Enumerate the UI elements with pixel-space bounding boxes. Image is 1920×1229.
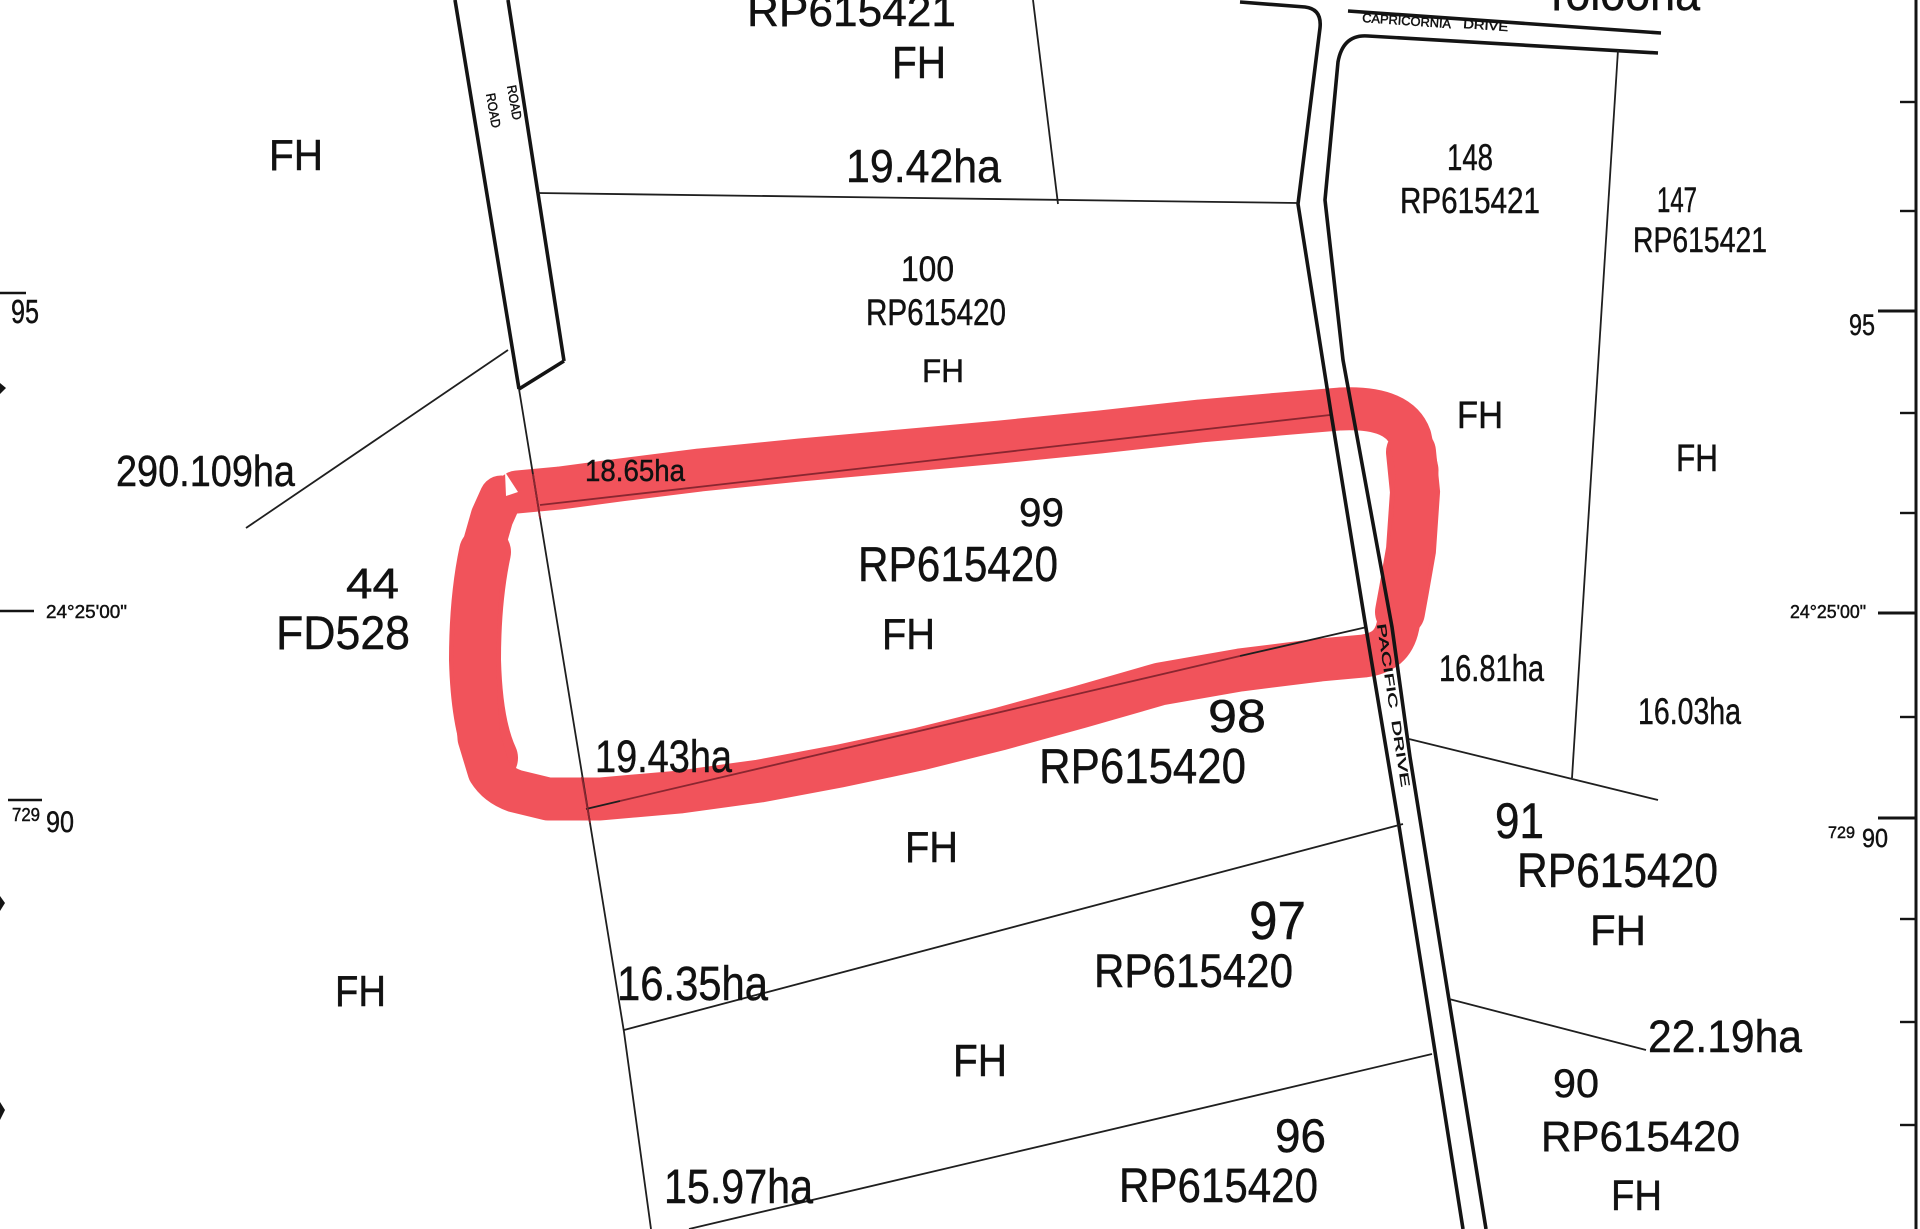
svg-text:19.43ha: 19.43ha	[595, 731, 733, 782]
svg-text:16.81ha: 16.81ha	[1439, 648, 1544, 689]
svg-text:91: 91	[1495, 793, 1544, 849]
svg-text:729: 729	[1828, 823, 1855, 842]
svg-text:147: 147	[1657, 181, 1697, 220]
svg-text:24°25'00": 24°25'00"	[1790, 602, 1866, 622]
svg-text:15.97ha: 15.97ha	[664, 1161, 813, 1214]
svg-text:FH: FH	[905, 823, 958, 872]
svg-text:18.65ha: 18.65ha	[585, 453, 686, 488]
svg-text:95: 95	[11, 293, 39, 330]
svg-text:97: 97	[1249, 891, 1306, 951]
svg-text:16.35ha: 16.35ha	[617, 958, 768, 1011]
svg-text:FH: FH	[1676, 438, 1718, 480]
svg-text:FH: FH	[892, 37, 946, 88]
svg-text:90: 90	[46, 806, 74, 839]
svg-text:22.19ha: 22.19ha	[1648, 1011, 1803, 1062]
svg-text:95: 95	[1849, 309, 1875, 342]
svg-text:Toloona: Toloona	[1543, 0, 1700, 21]
svg-text:FH: FH	[1590, 907, 1646, 955]
svg-text:RP615420: RP615420	[858, 538, 1058, 592]
svg-text:16.03ha: 16.03ha	[1638, 691, 1741, 732]
svg-text:148: 148	[1447, 137, 1493, 178]
svg-text:290.109ha: 290.109ha	[116, 447, 295, 496]
svg-text:90: 90	[1553, 1062, 1599, 1106]
svg-text:FH: FH	[1457, 395, 1503, 437]
svg-text:98: 98	[1208, 690, 1266, 742]
svg-text:44: 44	[346, 560, 399, 608]
svg-text:90: 90	[1862, 823, 1888, 853]
svg-text:729: 729	[12, 805, 40, 825]
svg-text:24°25'00": 24°25'00"	[46, 602, 127, 622]
svg-text:RP615421: RP615421	[747, 0, 956, 36]
svg-text:100: 100	[901, 250, 954, 289]
svg-text:RP615420: RP615420	[1039, 740, 1246, 794]
svg-text:96: 96	[1275, 1109, 1326, 1162]
svg-text:FH: FH	[953, 1035, 1007, 1086]
svg-text:FH: FH	[335, 967, 386, 1016]
svg-text:RP615420: RP615420	[866, 292, 1006, 333]
svg-text:FH: FH	[1611, 1172, 1662, 1220]
svg-text:RP615420: RP615420	[1119, 1160, 1318, 1213]
svg-text:FH: FH	[882, 610, 935, 659]
svg-text:FH: FH	[269, 131, 323, 180]
svg-text:RP615420: RP615420	[1094, 944, 1293, 997]
svg-text:FH: FH	[922, 353, 964, 389]
svg-text:19.42ha: 19.42ha	[846, 140, 1001, 192]
svg-text:FD528: FD528	[276, 606, 410, 659]
svg-text:RP615420: RP615420	[1541, 1113, 1740, 1161]
svg-text:RP615420: RP615420	[1517, 845, 1718, 898]
svg-text:RP615421: RP615421	[1400, 180, 1540, 221]
svg-text:RP615421: RP615421	[1633, 221, 1767, 260]
svg-text:99: 99	[1019, 491, 1064, 535]
